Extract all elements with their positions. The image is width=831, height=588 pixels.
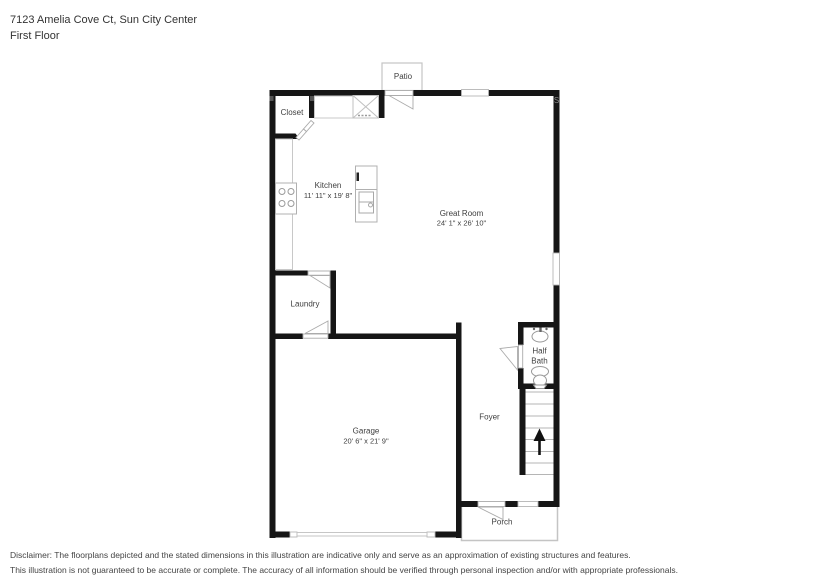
room-label-porch: Porch [492, 518, 513, 527]
floor-plan: Patio Closet Kitchen 11' 11" x 19' 8" Gr… [0, 0, 831, 588]
door-frame-tick [310, 96, 315, 101]
corner-annotation: S [554, 96, 559, 105]
door-opening [308, 271, 330, 275]
room-label-closet: Closet [281, 108, 304, 117]
island-mark [357, 173, 360, 182]
sink-basin [532, 331, 548, 342]
stairs [526, 392, 554, 475]
arrow-head [534, 429, 546, 442]
wall-segment [538, 501, 560, 507]
wall-segment [520, 389, 526, 475]
stove-body [276, 183, 297, 214]
window [462, 90, 489, 97]
wall-segment [270, 334, 304, 340]
wall-segment [413, 90, 462, 96]
wall-segment [435, 532, 462, 538]
door-swing [500, 347, 518, 371]
wall-segment [505, 501, 518, 507]
wall-segment [270, 90, 276, 538]
room-dims-garage: 20' 6" x 21' 9" [343, 437, 389, 446]
wall-segment [328, 334, 462, 340]
disclaimer-block: Disclaimer: The floorplans depicted and … [10, 548, 678, 578]
room-label-patio: Patio [394, 72, 413, 81]
toilet-base [534, 385, 547, 389]
floorplan-page: 7123 Amelia Cove Ct, Sun City Center Fir… [0, 0, 831, 588]
room-label-kitchen: Kitchen [315, 181, 342, 190]
door-opening [478, 502, 505, 507]
wall-segment [488, 90, 560, 96]
door-frame-tick [270, 96, 274, 101]
faucet-dot [533, 328, 535, 330]
room-label-garage: Garage [353, 427, 380, 436]
toilet-bowl [534, 375, 547, 386]
room-label-great-room: Great Room [440, 209, 484, 218]
door-swing [389, 96, 413, 110]
wall-segment [270, 134, 296, 140]
disclaimer-line-2: This illustration is not guaranteed to b… [10, 563, 678, 578]
wall-segment [456, 323, 462, 539]
door-swing [305, 321, 328, 334]
faucet-spout [539, 328, 541, 333]
room-label-laundry: Laundry [291, 300, 320, 309]
wall-segment [331, 271, 337, 340]
closet-bifold-door [304, 121, 315, 132]
disclaimer-line-1: Disclaimer: The floorplans depicted and … [10, 548, 678, 563]
room-dims-kitchen: 11' 11" x 19' 8" [304, 191, 353, 200]
room-dims-great-room: 24' 1" x 26' 10" [437, 219, 487, 228]
garage-door [297, 533, 427, 537]
wall-segment [379, 96, 385, 118]
door-opening [303, 334, 328, 338]
doors [296, 91, 523, 520]
wall-segment [518, 322, 560, 328]
door-opening [519, 345, 523, 368]
counter [315, 96, 354, 118]
window [518, 502, 538, 507]
wall-segment [554, 285, 560, 507]
kitchen-island [356, 166, 378, 222]
bathroom-sink-icon [532, 328, 548, 343]
walls [270, 90, 560, 538]
door-swing [310, 276, 330, 289]
stove-icon [276, 183, 297, 214]
wall-segment [554, 90, 560, 253]
wall-segment [270, 271, 309, 276]
wall-segment [518, 322, 524, 345]
wall-segment [462, 501, 479, 507]
door-opening [385, 91, 413, 96]
room-label-foyer: Foyer [479, 413, 500, 422]
toilet-icon [532, 367, 549, 389]
windows [290, 90, 560, 538]
room-label-half-bath-1: Half [532, 347, 547, 356]
faucet-dot [545, 328, 547, 330]
room-label-half-bath-2: Bath [531, 357, 547, 366]
window [553, 253, 560, 285]
wall-segment [270, 532, 291, 538]
window [427, 532, 435, 537]
room-labels: Patio Closet Kitchen 11' 11" x 19' 8" Gr… [281, 72, 560, 527]
window [290, 532, 297, 537]
